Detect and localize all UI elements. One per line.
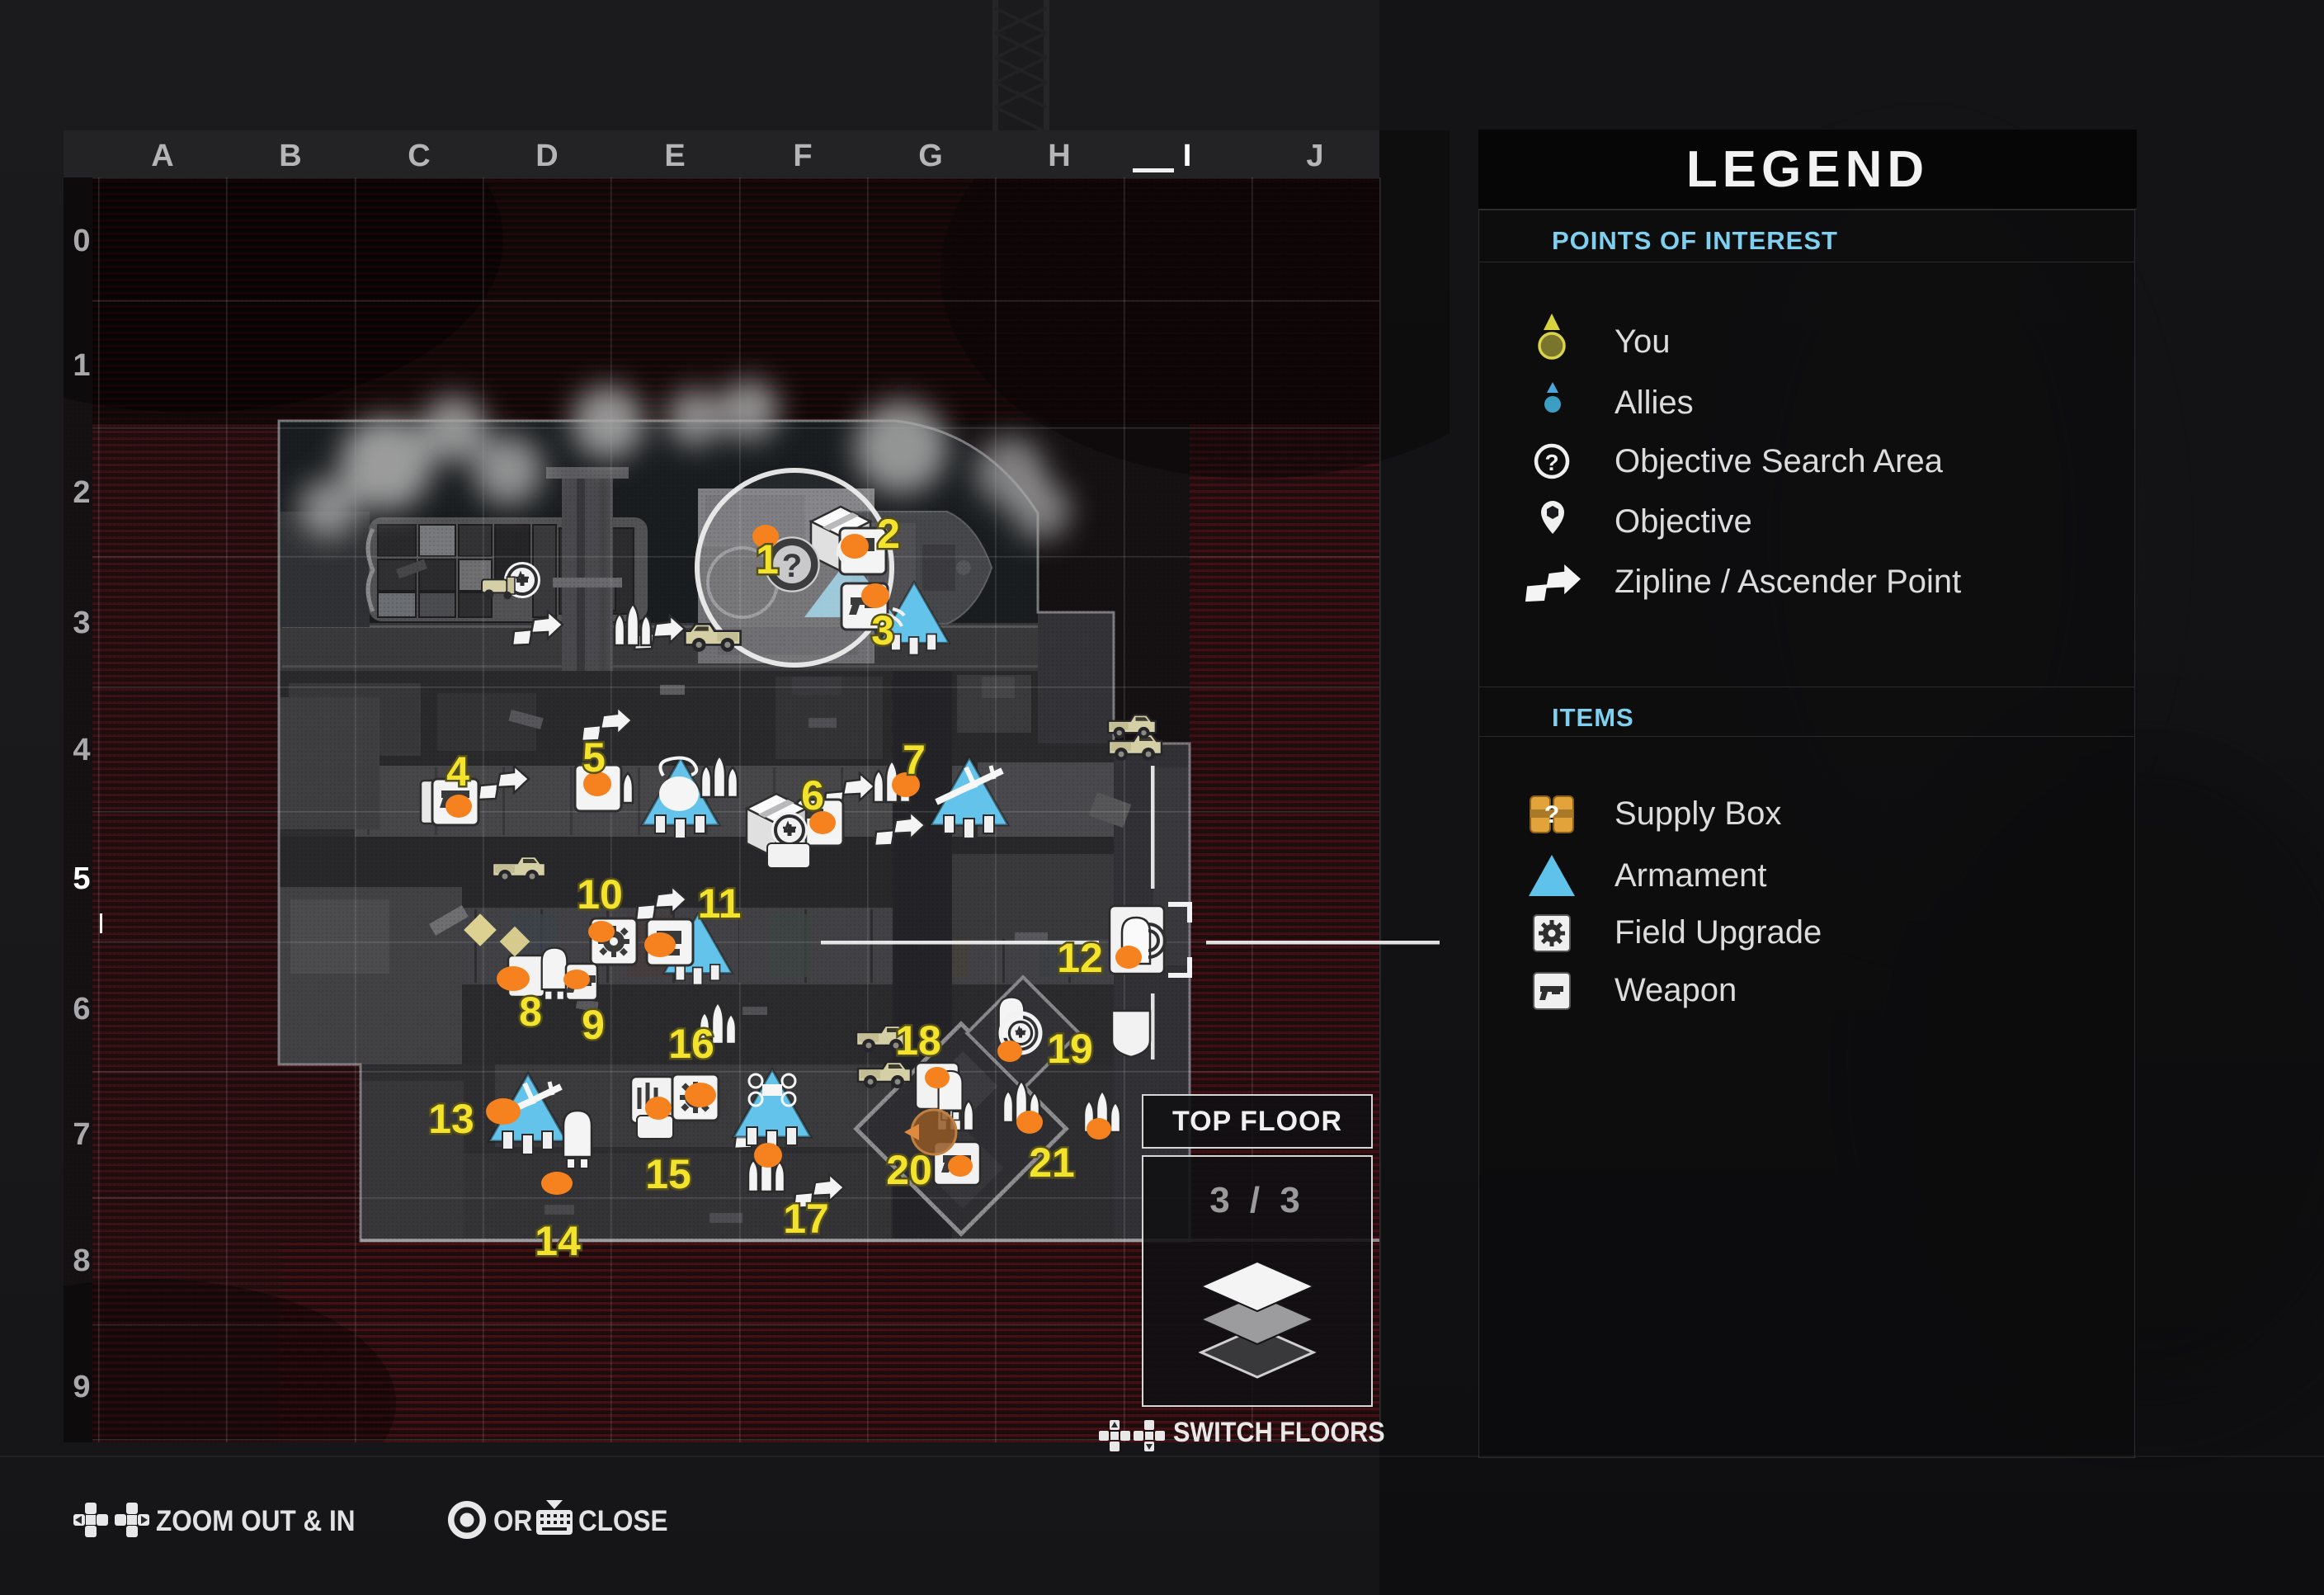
svg-text:A: A bbox=[151, 139, 173, 173]
svg-text:3: 3 bbox=[871, 607, 894, 654]
svg-text:12: 12 bbox=[1057, 935, 1103, 981]
svg-text:G: G bbox=[918, 139, 943, 173]
svg-text:11: 11 bbox=[698, 880, 742, 927]
svg-text:14: 14 bbox=[535, 1218, 581, 1264]
svg-text:D: D bbox=[535, 139, 558, 173]
svg-text:0: 0 bbox=[73, 224, 90, 258]
svg-text:9: 9 bbox=[582, 1002, 605, 1048]
svg-text:17: 17 bbox=[783, 1196, 829, 1242]
svg-text:9: 9 bbox=[73, 1370, 90, 1404]
svg-text:1: 1 bbox=[73, 348, 90, 383]
svg-text:J: J bbox=[1306, 139, 1323, 173]
svg-text:I: I bbox=[1183, 139, 1192, 173]
svg-text:15: 15 bbox=[645, 1151, 691, 1197]
svg-text:10: 10 bbox=[577, 871, 623, 918]
svg-text:C: C bbox=[408, 139, 430, 173]
svg-text:5: 5 bbox=[582, 734, 606, 781]
svg-text:18: 18 bbox=[895, 1017, 941, 1064]
svg-text:2: 2 bbox=[877, 511, 900, 557]
svg-text:B: B bbox=[279, 139, 301, 173]
svg-text:4: 4 bbox=[73, 733, 90, 767]
svg-text:?: ? bbox=[782, 548, 802, 584]
svg-text:7: 7 bbox=[73, 1117, 90, 1152]
svg-text:21: 21 bbox=[1029, 1140, 1075, 1186]
svg-text:?: ? bbox=[1544, 801, 1559, 828]
svg-text:H: H bbox=[1048, 139, 1070, 173]
svg-text:3: 3 bbox=[73, 606, 90, 640]
svg-text:8: 8 bbox=[519, 989, 542, 1035]
svg-text:F: F bbox=[793, 139, 812, 173]
svg-text:E: E bbox=[664, 139, 685, 173]
svg-text:4: 4 bbox=[446, 748, 469, 795]
svg-text:1: 1 bbox=[756, 536, 779, 583]
svg-text:13: 13 bbox=[428, 1096, 474, 1142]
svg-text:20: 20 bbox=[886, 1147, 932, 1193]
svg-text:5: 5 bbox=[73, 861, 90, 896]
svg-text:19: 19 bbox=[1047, 1026, 1093, 1072]
svg-text:?: ? bbox=[1544, 450, 1558, 475]
svg-text:6: 6 bbox=[73, 992, 90, 1026]
svg-text:2: 2 bbox=[73, 475, 90, 510]
svg-text:6: 6 bbox=[801, 772, 824, 819]
svg-text:16: 16 bbox=[668, 1021, 714, 1067]
svg-text:7: 7 bbox=[903, 737, 926, 783]
svg-text:8: 8 bbox=[73, 1243, 90, 1278]
